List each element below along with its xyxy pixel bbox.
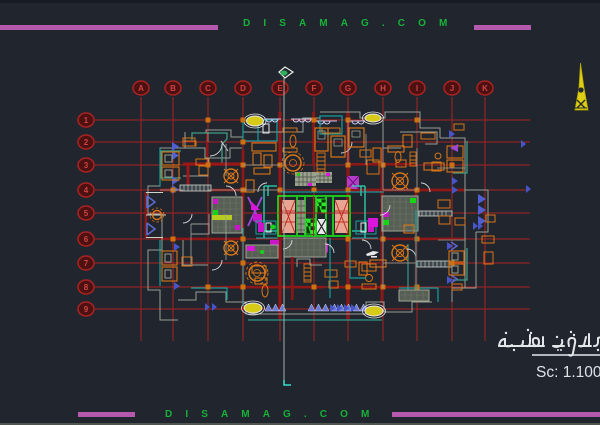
svg-text:Sc: 1.100: Sc: 1.100 (536, 364, 600, 381)
